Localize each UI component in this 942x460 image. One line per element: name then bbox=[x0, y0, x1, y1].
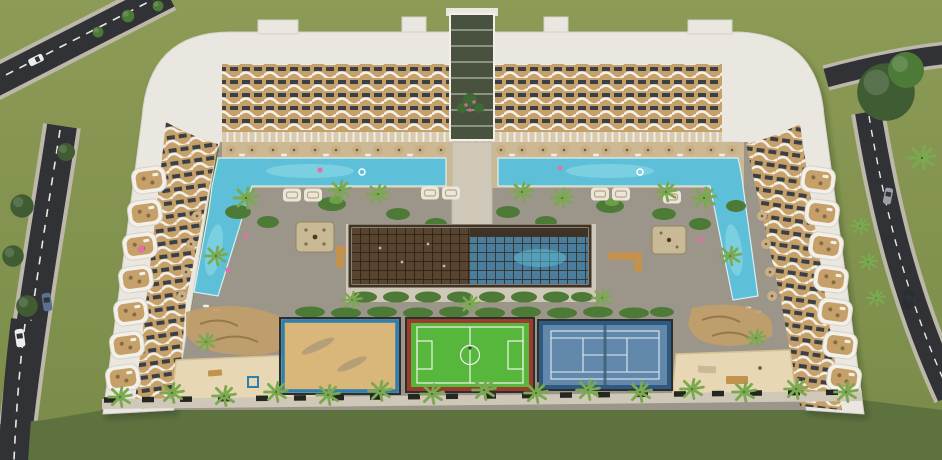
balcony-terrace bbox=[816, 297, 853, 327]
balcony-terrace bbox=[821, 330, 858, 360]
lounger-icon bbox=[323, 154, 329, 156]
shrub bbox=[496, 206, 520, 218]
pavilion-furniture bbox=[379, 247, 382, 250]
umbrella-icon bbox=[559, 145, 569, 155]
cabana-icon bbox=[612, 188, 630, 201]
tennis-court bbox=[538, 320, 672, 390]
umbrella-icon bbox=[727, 145, 737, 155]
umbrella-icon bbox=[268, 145, 278, 155]
planter bbox=[571, 292, 593, 302]
umbrella-icon bbox=[226, 145, 236, 155]
planter bbox=[447, 292, 473, 303]
umbrella-icon bbox=[247, 145, 257, 155]
shrub bbox=[257, 216, 279, 228]
chair bbox=[322, 228, 325, 231]
umbrella-icon bbox=[192, 211, 202, 221]
sand-court bbox=[283, 321, 397, 391]
umbrella-icon bbox=[622, 145, 632, 155]
lounger-icon bbox=[719, 154, 725, 156]
umbrella-icon bbox=[310, 145, 320, 155]
wooden-bench bbox=[634, 252, 642, 272]
hedge bbox=[331, 308, 361, 319]
hedge bbox=[511, 307, 541, 318]
hedge bbox=[619, 308, 649, 319]
umbrella-icon bbox=[538, 145, 548, 155]
lounge-platform bbox=[296, 222, 334, 252]
fire-pit bbox=[667, 238, 671, 242]
cabana-icon bbox=[421, 187, 439, 200]
pool-highlight bbox=[266, 164, 354, 178]
float bbox=[244, 234, 249, 239]
umbrella-icon bbox=[601, 145, 611, 155]
hedge bbox=[475, 308, 505, 319]
tree-icon bbox=[57, 143, 75, 161]
lounger-icon bbox=[407, 154, 413, 156]
umbrella-icon bbox=[415, 145, 425, 155]
tree-icon bbox=[122, 10, 135, 23]
tree-icon bbox=[93, 27, 104, 38]
fire-pit bbox=[313, 235, 318, 240]
lounger-icon bbox=[203, 305, 209, 307]
hedge bbox=[367, 307, 397, 318]
chair bbox=[304, 242, 307, 245]
planter bbox=[543, 292, 569, 303]
lounger-icon bbox=[239, 154, 245, 156]
shrub bbox=[652, 208, 676, 220]
umbrella-icon bbox=[394, 145, 404, 155]
play-equipment bbox=[698, 366, 716, 374]
central-walkway bbox=[452, 142, 492, 228]
roof-block bbox=[688, 20, 732, 34]
float bbox=[558, 166, 563, 171]
balcony-terrace bbox=[799, 165, 836, 195]
umbrella-icon bbox=[580, 145, 590, 155]
tree-icon bbox=[153, 1, 164, 12]
play-equipment bbox=[208, 369, 222, 376]
hedge bbox=[547, 308, 577, 319]
chair bbox=[676, 246, 679, 249]
chair bbox=[304, 228, 307, 231]
chair bbox=[660, 232, 663, 235]
shrub bbox=[386, 208, 410, 220]
hedge bbox=[650, 307, 674, 317]
lounger-icon bbox=[677, 154, 683, 156]
float bbox=[225, 267, 230, 272]
balcony-terrace bbox=[117, 264, 154, 294]
cabana-icon bbox=[442, 187, 460, 200]
play-equipment bbox=[758, 366, 762, 370]
umbrella-icon bbox=[685, 145, 695, 155]
umbrella-icon bbox=[643, 145, 653, 155]
covered-pool-water bbox=[514, 249, 566, 267]
umbrella-icon bbox=[331, 145, 341, 155]
wooden-bench bbox=[336, 246, 344, 268]
player bbox=[468, 346, 471, 349]
umbrella-icon bbox=[765, 267, 775, 277]
pavilion-furniture bbox=[443, 265, 446, 268]
lounger-icon bbox=[509, 154, 515, 156]
central-pavilion bbox=[346, 224, 596, 303]
tree-icon bbox=[2, 245, 24, 267]
roof-block bbox=[544, 17, 568, 32]
pavilion-furniture bbox=[401, 261, 404, 264]
tree-icon bbox=[16, 295, 38, 317]
hedge bbox=[295, 307, 325, 318]
umbrella-icon bbox=[436, 145, 446, 155]
umbrella-icon bbox=[767, 291, 777, 301]
cabana-icon bbox=[591, 188, 609, 201]
planter bbox=[511, 292, 537, 303]
lounger-icon bbox=[593, 154, 599, 156]
shrub bbox=[726, 200, 746, 212]
float bbox=[697, 237, 702, 242]
balcony-terrace bbox=[812, 264, 849, 294]
hedge bbox=[583, 307, 613, 318]
balcony-terrace bbox=[112, 297, 149, 327]
lounger-icon bbox=[635, 154, 641, 156]
balcony-terrace bbox=[807, 231, 844, 261]
chair bbox=[322, 242, 325, 245]
atrium-tower bbox=[446, 8, 498, 140]
umbrella-icon bbox=[517, 145, 527, 155]
umbrella-icon bbox=[289, 145, 299, 155]
planter bbox=[415, 292, 441, 303]
umbrella-icon bbox=[757, 211, 767, 221]
atrium-plants bbox=[474, 103, 484, 113]
balcony-terrace bbox=[130, 165, 167, 195]
float bbox=[317, 167, 322, 172]
cabana-icon bbox=[283, 189, 301, 202]
umbrella-icon bbox=[373, 145, 383, 155]
planter bbox=[383, 292, 409, 303]
umbrella-icon bbox=[706, 145, 716, 155]
roof-block bbox=[402, 17, 426, 32]
umbrella-icon bbox=[496, 145, 506, 155]
lounger-icon bbox=[365, 154, 371, 156]
umbrella-icon bbox=[664, 145, 674, 155]
tree-icon bbox=[10, 194, 33, 217]
atrium-flowers bbox=[464, 103, 468, 107]
balcony-terrace bbox=[108, 330, 145, 360]
umbrella-icon bbox=[761, 239, 771, 249]
umbrella-icon bbox=[352, 145, 362, 155]
atrium-flowers bbox=[468, 108, 472, 112]
balcony-terrace bbox=[803, 198, 840, 228]
cabana-icon bbox=[304, 189, 322, 202]
roof-block bbox=[258, 20, 298, 34]
pool-highlight bbox=[566, 164, 654, 178]
pink-terrace-umbrella bbox=[138, 246, 145, 253]
pavilion-furniture bbox=[427, 243, 430, 246]
pavilion-wood-band bbox=[470, 228, 588, 237]
football-pitch bbox=[406, 318, 534, 392]
balcony-terrace bbox=[126, 198, 163, 228]
lounger-icon bbox=[281, 154, 287, 156]
planter bbox=[479, 292, 505, 303]
atrium-glass bbox=[450, 14, 494, 140]
tree-icon bbox=[888, 52, 924, 88]
umbrella-icon bbox=[177, 291, 187, 301]
aerial-render: Aerial 3D architectural render of a U-sh… bbox=[0, 0, 942, 460]
lounge-platform bbox=[652, 226, 686, 254]
umbrella-icon bbox=[181, 267, 191, 277]
pavilion-lattice-grid bbox=[352, 228, 470, 284]
atrium-flowers bbox=[472, 100, 476, 104]
shrub bbox=[689, 218, 711, 230]
scene-svg: Aerial 3D architectural render of a U-sh… bbox=[0, 0, 942, 460]
umbrella-icon bbox=[186, 239, 196, 249]
lounger-icon bbox=[551, 154, 557, 156]
hedge bbox=[403, 308, 433, 319]
